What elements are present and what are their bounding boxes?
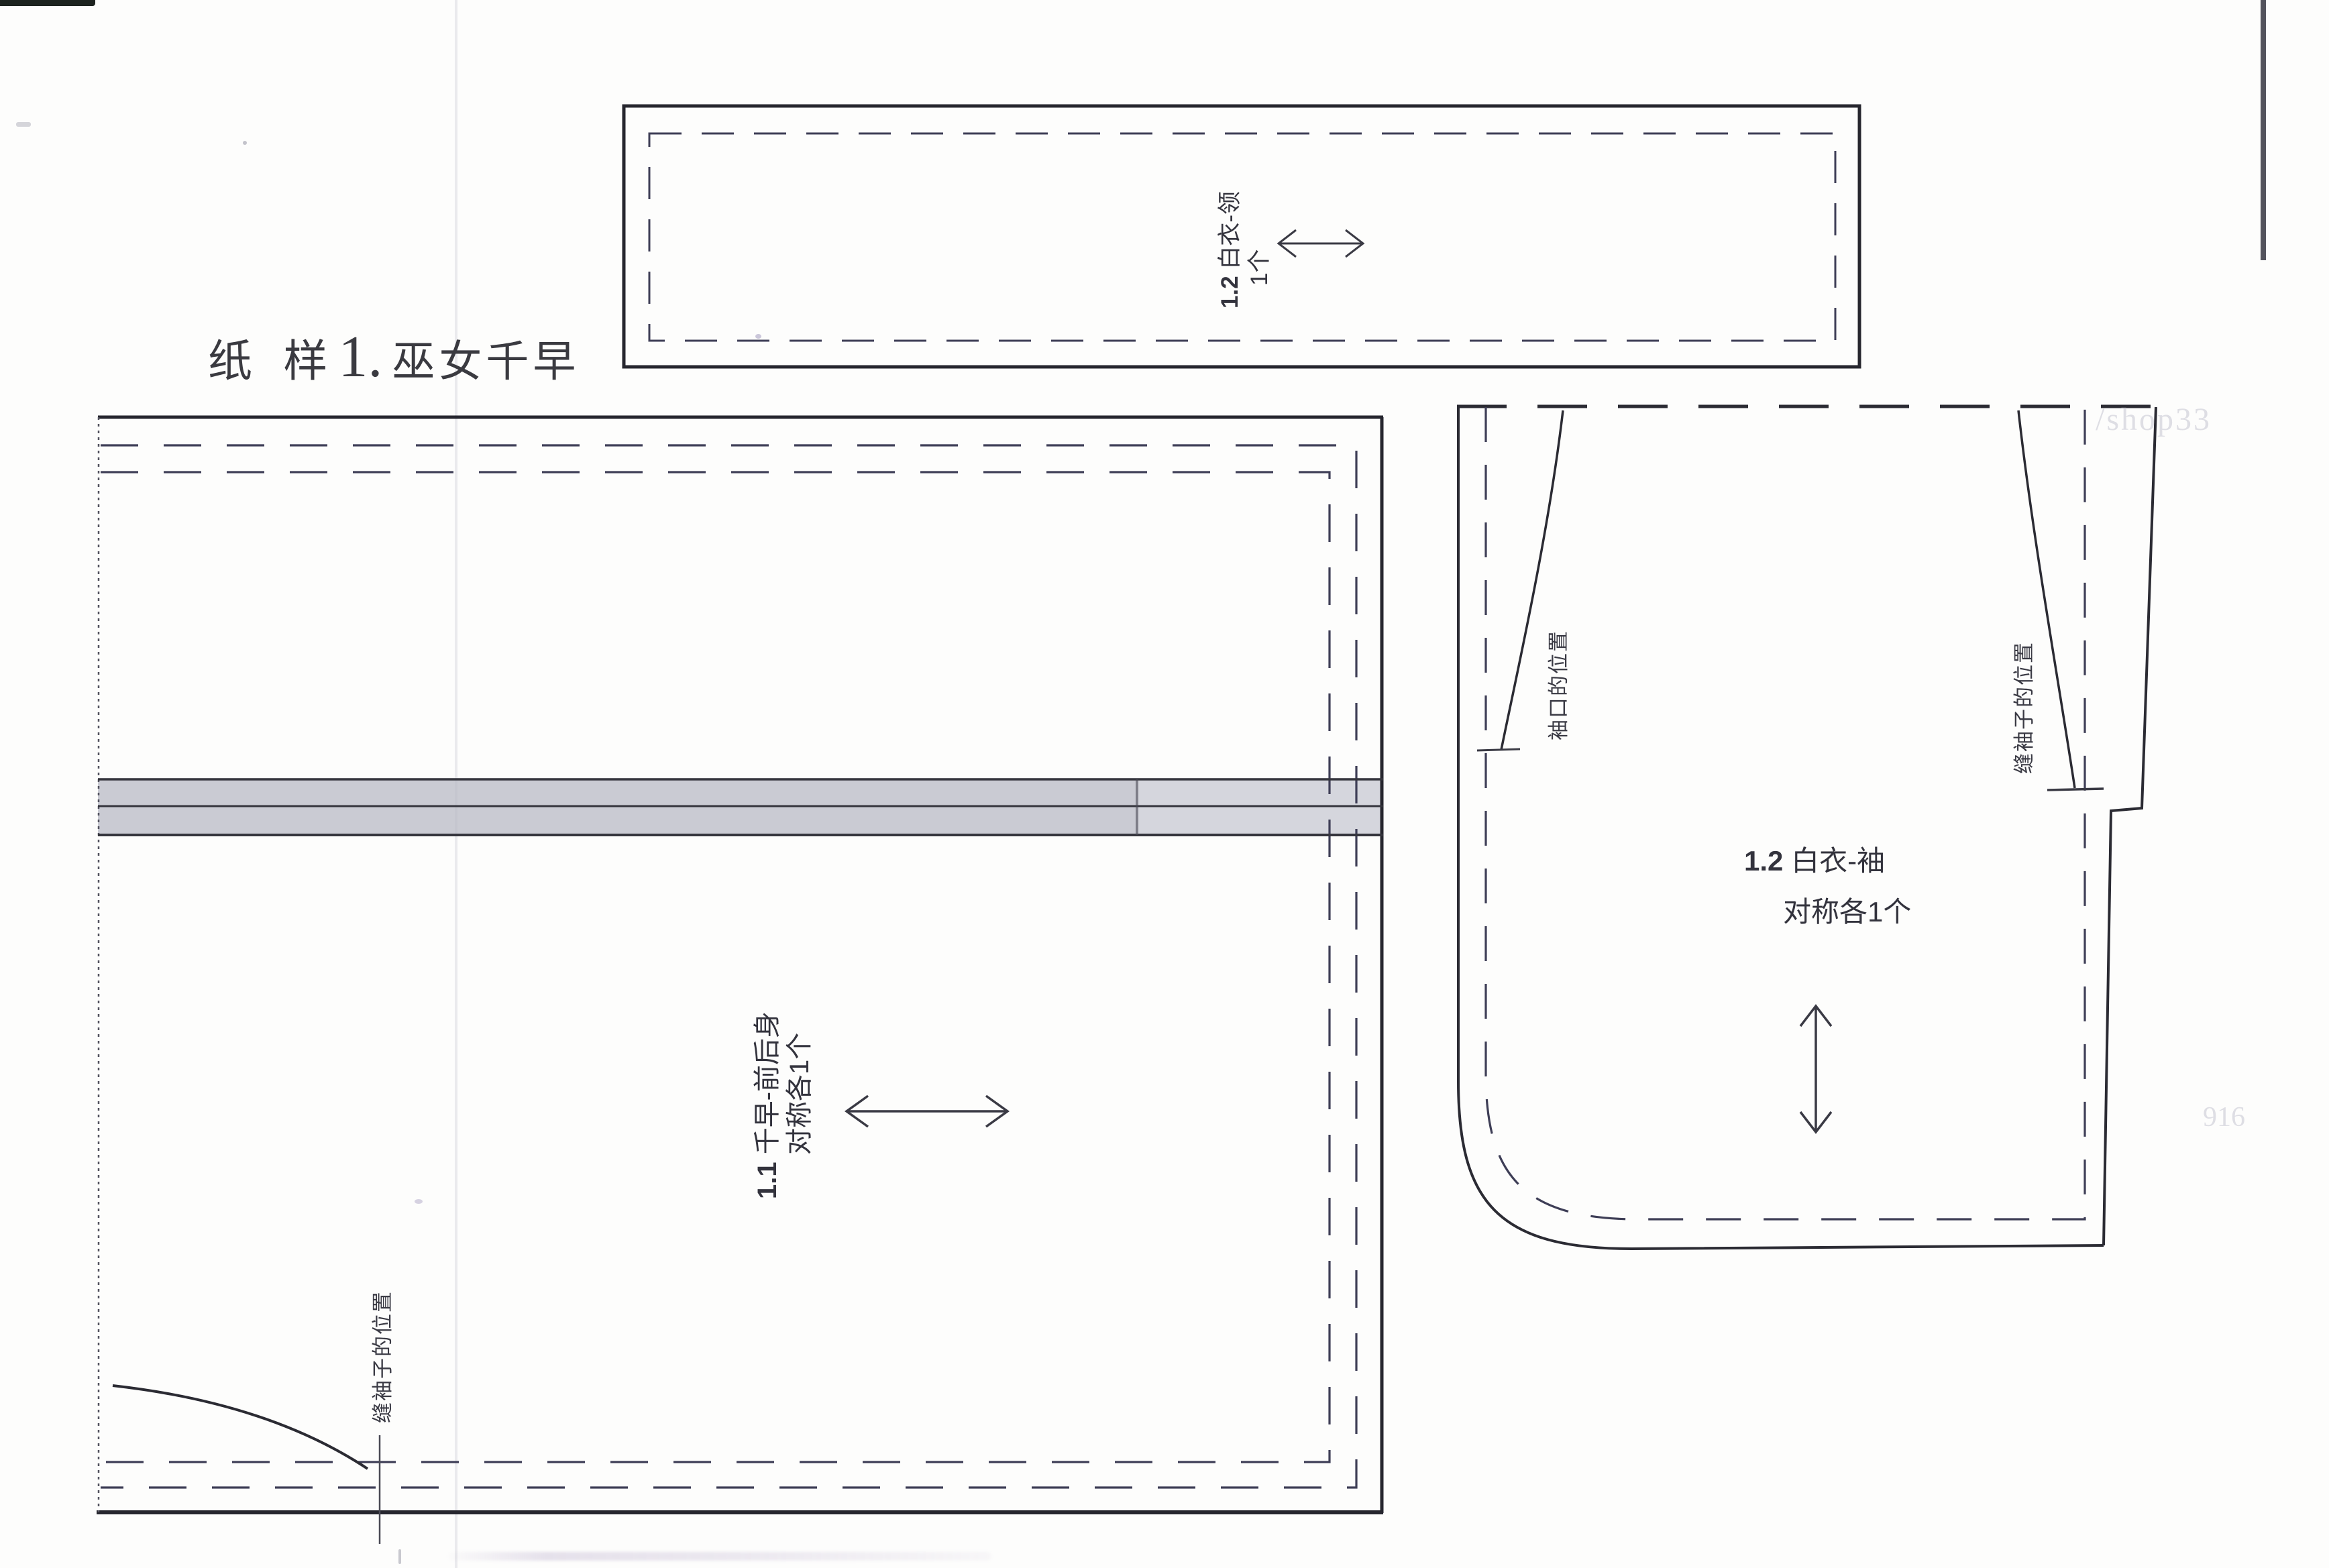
- body-grainline-arrow: [847, 1096, 1008, 1127]
- collar-label-quantity: 1个: [1245, 191, 1275, 286]
- page-title-number: 1.: [338, 323, 382, 391]
- page-title-name: 巫女千早: [392, 327, 580, 389]
- body-label-quantity: 对称各1个: [783, 1011, 816, 1155]
- collar-label-name: 白衣-领: [1217, 191, 1243, 270]
- collar-grainline-arrow: [1279, 230, 1363, 257]
- scanned-pattern-page: { "page": { "title_prefix": "纸 样", "titl…: [0, 0, 2329, 1568]
- sleeve-label-quantity: 对称各1个: [1783, 887, 1911, 938]
- sleeve-grainline-arrow: [1800, 1006, 1831, 1132]
- page-title-prefix: 纸 样: [208, 325, 337, 390]
- sleeve-sew-annotation: 缝袖子的位置: [2007, 641, 2037, 774]
- body-piece-outline: [97, 417, 1383, 1544]
- body-piece-label: 1.1 千早-前后身 对称各1个: [751, 1011, 816, 1199]
- collar-label-number: 1.2: [1217, 276, 1243, 309]
- watermark-number: 916: [2203, 1101, 2245, 1133]
- sleeve-piece-label: 1.2 白衣-袖 对称各1个: [1744, 836, 1911, 938]
- collar-piece-label: 1.2 白衣-领 1个: [1215, 191, 1275, 309]
- body-sew-sleeve-annotation: 缝袖子的位置: [366, 1290, 396, 1423]
- sleeve-cuff-annotation: 袖口的位置: [1541, 630, 1572, 740]
- watermark-shop: /shop33: [2096, 401, 2212, 438]
- body-label-number: 1.1: [753, 1162, 782, 1199]
- sleeve-label-name: 白衣-袖: [1791, 845, 1885, 877]
- body-label-name: 千早-前后身: [753, 1011, 782, 1154]
- sleeve-label-number: 1.2: [1744, 845, 1783, 877]
- page-title: 纸 样 1. 巫女千早: [208, 323, 580, 391]
- pattern-linework: [0, 0, 2329, 1568]
